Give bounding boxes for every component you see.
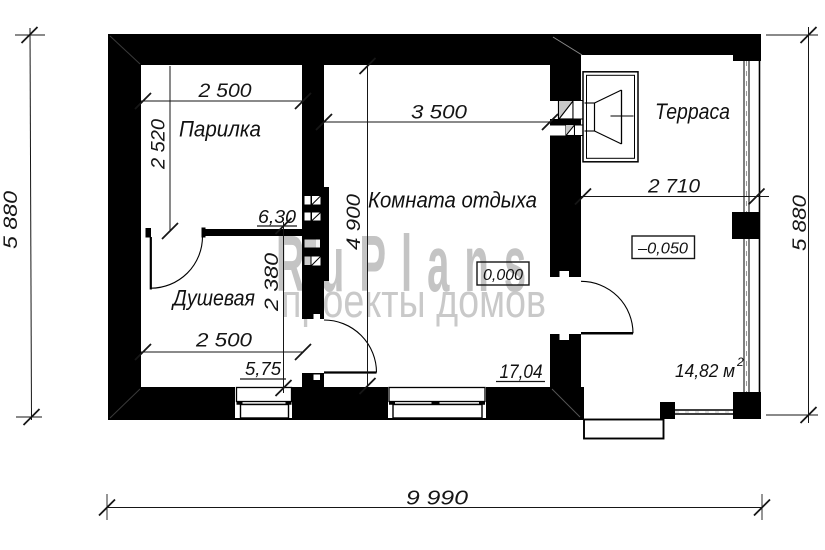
svg-text:Парилка: Парилка	[179, 117, 261, 142]
svg-text:–0,050: –0,050	[637, 241, 688, 258]
svg-text:Душевая: Душевая	[170, 286, 255, 311]
svg-text:5 880: 5 880	[1, 190, 22, 249]
svg-text:4 900: 4 900	[344, 193, 365, 250]
svg-text:Комната отдыха: Комната отдыха	[368, 188, 537, 213]
svg-text:2 380: 2 380	[262, 252, 283, 312]
svg-text:5 880: 5 880	[790, 194, 811, 251]
svg-text:2 520: 2 520	[149, 119, 170, 171]
svg-text:9 990: 9 990	[406, 488, 468, 510]
svg-text:0,000: 0,000	[483, 267, 523, 284]
svg-text:5,75: 5,75	[245, 359, 282, 379]
svg-text:3 500: 3 500	[411, 103, 468, 124]
svg-text:17,04: 17,04	[500, 362, 543, 383]
svg-text:14,82 м: 14,82 м	[675, 361, 735, 381]
svg-text:2 710: 2 710	[647, 177, 701, 198]
svg-text:6,30: 6,30	[258, 207, 296, 227]
svg-text:2: 2	[736, 355, 744, 369]
svg-text:2 500: 2 500	[197, 81, 252, 102]
svg-text:2 500: 2 500	[195, 331, 253, 352]
svg-text:Терраса: Терраса	[655, 99, 730, 124]
